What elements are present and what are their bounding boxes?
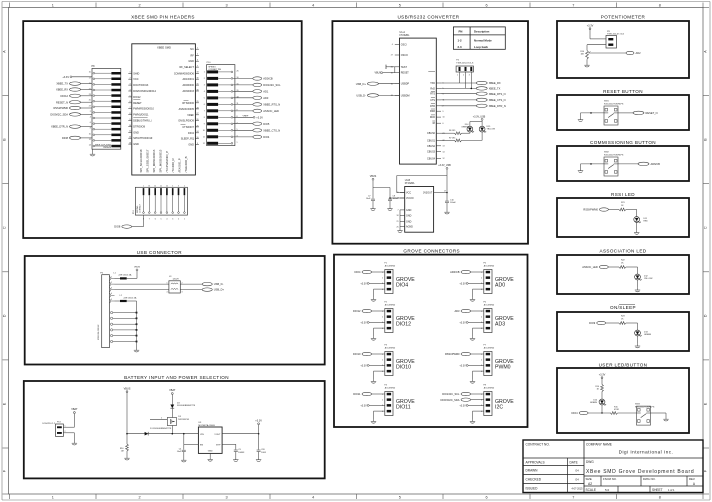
svg-text:R6 1K5: R6 1K5 bbox=[449, 130, 455, 132]
svg-text:BYP: BYP bbox=[216, 444, 221, 446]
svg-text:C: C bbox=[704, 226, 708, 229]
svg-text:2: 2 bbox=[138, 496, 140, 500]
svg-text:7: 7 bbox=[130, 107, 131, 109]
svg-text:Normal Mode: Normal Mode bbox=[474, 38, 492, 42]
svg-text:RSSI/PWM0: RSSI/PWM0 bbox=[583, 208, 598, 212]
svg-text:MIC5B7/A-33GB: MIC5B7/A-33GB bbox=[198, 424, 215, 427]
svg-text:7: 7 bbox=[204, 111, 205, 113]
svg-text:AD0: AD0 bbox=[495, 283, 505, 289]
svg-text:14: 14 bbox=[443, 151, 445, 153]
svg-text:VCCIO: VCCIO bbox=[406, 197, 414, 200]
svg-text:XBEE_RTS_N: XBEE_RTS_N bbox=[489, 92, 506, 96]
svg-text:DIO12: DIO12 bbox=[396, 322, 411, 328]
svg-text:SW2: SW2 bbox=[604, 152, 610, 154]
svg-text:TXD: TXD bbox=[430, 82, 435, 85]
svg-text:+3.3V: +3.3V bbox=[256, 117, 263, 120]
svg-text:2: 2 bbox=[111, 282, 112, 284]
svg-text:1: 1 bbox=[457, 74, 458, 76]
svg-text:3: 3 bbox=[172, 218, 173, 220]
svg-text:11: 11 bbox=[129, 131, 131, 133]
svg-text:27: 27 bbox=[391, 55, 393, 57]
svg-text:RF_SELECT: RF_SELECT bbox=[179, 66, 194, 69]
svg-text:RSSI LED: RSSI LED bbox=[611, 192, 635, 197]
svg-text:10: 10 bbox=[443, 117, 445, 119]
svg-text:120uH: 120uH bbox=[173, 279, 179, 281]
svg-text:3: 3 bbox=[204, 85, 205, 87]
svg-text:GND: GND bbox=[188, 144, 194, 147]
svg-text:VCC: VCC bbox=[406, 192, 411, 195]
svg-text:CONTRACT NO.: CONTRACT NO. bbox=[526, 443, 550, 447]
svg-text:KSC421J/70SHLFS: KSC421J/70SHLFS bbox=[604, 154, 624, 156]
svg-text:3: 3 bbox=[469, 74, 470, 76]
svg-text:3: 3 bbox=[225, 3, 227, 7]
svg-text:470R: 470R bbox=[614, 409, 619, 411]
svg-text:RED: RED bbox=[644, 221, 649, 223]
svg-text:I2C: I2C bbox=[495, 405, 503, 411]
svg-text:7: 7 bbox=[237, 122, 238, 124]
svg-text:ASSOC_LED: ASSOC_LED bbox=[263, 109, 279, 113]
svg-text:AD1: AD1 bbox=[263, 89, 269, 93]
svg-text:DIO4: DIO4 bbox=[354, 270, 361, 274]
svg-text:DIO5: DIO5 bbox=[263, 122, 270, 126]
svg-text:1: 1 bbox=[52, 496, 54, 500]
svg-text:XBEE_DTR_N: XBEE_DTR_N bbox=[51, 125, 68, 129]
svg-text:BATTERY INPUT AND POWER SELECT: BATTERY INPUT AND POWER SELECTION bbox=[124, 375, 229, 380]
svg-text:XBEE_RX: XBEE_RX bbox=[489, 81, 501, 85]
svg-text:12: 12 bbox=[203, 143, 205, 145]
svg-text:COMMISSIONING BUTTON: COMMISSIONING BUTTON bbox=[590, 140, 656, 145]
svg-text:C: C bbox=[3, 226, 7, 229]
svg-text:RESET: RESET bbox=[133, 102, 142, 105]
svg-text:2: 2 bbox=[138, 3, 140, 7]
svg-text:DWG: DWG bbox=[586, 460, 594, 464]
svg-text:COMPANY NAME: COMPANY NAME bbox=[586, 443, 612, 447]
svg-text:19: 19 bbox=[89, 83, 91, 85]
svg-text:4: 4 bbox=[392, 44, 393, 46]
svg-text:ACC3SH40: ACC3SH40 bbox=[385, 386, 396, 389]
svg-text:RSSI/PWM0: RSSI/PWM0 bbox=[53, 106, 68, 110]
svg-text:TSW-103-07-G-S: TSW-103-07-G-S bbox=[456, 63, 474, 65]
svg-text:MALE 4-DP-25E02: MALE 4-DP-25E02 bbox=[95, 144, 111, 147]
svg-text:ASSOC/DIO5: ASSOC/DIO5 bbox=[179, 108, 195, 111]
svg-text:4: 4 bbox=[167, 291, 168, 293]
svg-text:SIZE: SIZE bbox=[586, 477, 592, 481]
svg-text:CTS: CTS bbox=[430, 99, 435, 102]
svg-text:28: 28 bbox=[197, 107, 199, 109]
svg-text:RESET_N: RESET_N bbox=[56, 100, 68, 104]
svg-text:5: 5 bbox=[172, 185, 173, 187]
svg-text:RF: RF bbox=[191, 54, 195, 57]
svg-text:SPRING: SPRING bbox=[137, 205, 139, 213]
svg-text:12: 12 bbox=[154, 185, 156, 187]
svg-text:AD3: AD3 bbox=[495, 322, 505, 328]
svg-text:SPI_MISO/DIO15: SPI_MISO/DIO15 bbox=[158, 149, 162, 172]
svg-text:XBEE_TX: XBEE_TX bbox=[489, 87, 501, 91]
svg-text:Description: Description bbox=[474, 29, 490, 33]
svg-text:10UF: 10UF bbox=[261, 452, 267, 454]
svg-text:/TX/PWR/DIO_P: /TX/PWR/DIO_P bbox=[165, 151, 169, 173]
svg-text:3: 3 bbox=[111, 288, 112, 290]
svg-text:2: 2 bbox=[481, 317, 482, 319]
svg-text:6: 6 bbox=[204, 104, 205, 106]
svg-text:VBUS: VBUS bbox=[374, 72, 381, 75]
svg-text:DIO11: DIO11 bbox=[396, 405, 411, 411]
svg-text:4: 4 bbox=[130, 89, 131, 91]
svg-text:26: 26 bbox=[237, 70, 239, 72]
svg-text:1: 1 bbox=[237, 142, 238, 144]
svg-text:CBUS4: CBUS4 bbox=[427, 158, 436, 161]
svg-text:2: 2 bbox=[481, 360, 482, 362]
svg-text:DWG NO.: DWG NO. bbox=[643, 477, 656, 481]
svg-text:GND: GND bbox=[406, 209, 412, 212]
svg-text:PWM1/DIO11: PWM1/DIO11 bbox=[133, 114, 149, 117]
svg-text:12: 12 bbox=[129, 137, 131, 139]
svg-text:ACC3SH40: ACC3SH40 bbox=[484, 346, 495, 349]
svg-text:9: 9 bbox=[197, 143, 198, 145]
svg-text:ACC3SH40: ACC3SH40 bbox=[484, 264, 495, 267]
svg-text:3: 3 bbox=[130, 84, 131, 86]
svg-text:USB_D+: USB_D+ bbox=[356, 82, 367, 86]
svg-text:9: 9 bbox=[443, 111, 444, 113]
svg-text:4: 4 bbox=[312, 496, 314, 500]
svg-text:8: 8 bbox=[204, 117, 205, 119]
svg-text:GREEN: GREEN bbox=[590, 402, 598, 404]
svg-text:+3.3V: +3.3V bbox=[459, 404, 466, 407]
svg-text:FT232RL: FT232RL bbox=[400, 34, 411, 37]
svg-text:SHID: SHID bbox=[133, 72, 139, 75]
svg-text:GND: GND bbox=[406, 214, 412, 217]
svg-text:Digi International Inc.: Digi International Inc. bbox=[619, 450, 674, 455]
svg-text:VBAT: VBAT bbox=[71, 408, 78, 411]
svg-text:11: 11 bbox=[160, 185, 162, 187]
svg-text:RESET_N: RESET_N bbox=[646, 111, 658, 115]
svg-text:CBUS1: CBUS1 bbox=[427, 139, 436, 142]
svg-text:AD0/DIO0: AD0/DIO0 bbox=[182, 84, 194, 87]
svg-text:AD3: AD3 bbox=[454, 309, 460, 313]
svg-text:SHEET: SHEET bbox=[652, 488, 663, 492]
svg-text:10: 10 bbox=[89, 133, 91, 135]
svg-text:2-3: 2-3 bbox=[458, 45, 462, 49]
svg-text:VBAT: VBAT bbox=[169, 389, 176, 392]
svg-text:B: B bbox=[2, 138, 6, 141]
svg-text:12: 12 bbox=[443, 158, 445, 160]
svg-text:18: 18 bbox=[397, 215, 399, 217]
svg-text:1-2: 1-2 bbox=[458, 38, 462, 42]
svg-text:4: 4 bbox=[90, 117, 91, 119]
svg-text:R7 1K5: R7 1K5 bbox=[449, 137, 455, 139]
svg-text:VBUS: VBUS bbox=[124, 387, 131, 390]
svg-text:CBUS3: CBUS3 bbox=[427, 151, 436, 154]
svg-text:RESET BUTTON: RESET BUTTON bbox=[603, 89, 643, 94]
svg-text:7: 7 bbox=[149, 218, 150, 220]
svg-text:2: 2 bbox=[184, 185, 185, 187]
svg-text:USB_D-: USB_D- bbox=[356, 94, 366, 98]
svg-text:SLEEP_RQ: SLEEP_RQ bbox=[181, 138, 194, 141]
svg-text:5: 5 bbox=[204, 98, 205, 100]
svg-text:SPI_SCLK/DIO18: SPI_SCLK/DIO18 bbox=[139, 149, 143, 172]
svg-text:DIO9: DIO9 bbox=[589, 321, 596, 325]
svg-text:XBee SMD Grove Development Boa: XBee SMD Grove Development Board bbox=[586, 469, 694, 475]
svg-text:4: 4 bbox=[204, 91, 205, 93]
svg-text:6: 6 bbox=[155, 218, 156, 220]
svg-text:7: 7 bbox=[197, 66, 198, 68]
svg-text:100nF: 100nF bbox=[450, 202, 456, 204]
svg-text:DIO10: DIO10 bbox=[396, 365, 411, 371]
svg-text:13: 13 bbox=[443, 145, 445, 147]
svg-text:DIO11: DIO11 bbox=[353, 392, 361, 396]
svg-text:1: 1 bbox=[204, 72, 205, 74]
svg-text:NC: NC bbox=[190, 48, 194, 51]
svg-text:6: 6 bbox=[485, 3, 487, 7]
svg-text:ACC3SH40: ACC3SH40 bbox=[385, 346, 396, 349]
svg-text:2: 2 bbox=[65, 431, 66, 433]
svg-text:4: 4 bbox=[166, 218, 167, 220]
svg-text:REV.: REV. bbox=[689, 477, 695, 481]
svg-text:AD1/DIO1: AD1/DIO1 bbox=[182, 78, 194, 81]
svg-text:29: 29 bbox=[197, 101, 199, 103]
svg-text:+3.3V: +3.3V bbox=[255, 419, 262, 422]
svg-text:1: 1 bbox=[143, 185, 144, 187]
svg-text:+3.3V_USB: +3.3V_USB bbox=[438, 164, 451, 167]
svg-text:3V3OUT: 3V3OUT bbox=[423, 192, 433, 195]
svg-text:USB_D-: USB_D- bbox=[214, 282, 224, 286]
svg-text:USB_D+: USB_D+ bbox=[214, 288, 225, 292]
svg-text:GND: GND bbox=[406, 220, 412, 223]
svg-text:AD3/DIO3: AD3/DIO3 bbox=[182, 90, 194, 93]
svg-text:RxD: RxD bbox=[430, 87, 435, 90]
svg-text:DIO12: DIO12 bbox=[133, 96, 141, 99]
svg-text:3: 3 bbox=[182, 291, 183, 293]
svg-text:DCB-PIN #1.2: DCB-PIN #1.2 bbox=[42, 423, 56, 425]
svg-text:TEST: TEST bbox=[401, 66, 408, 69]
svg-text:24: 24 bbox=[197, 131, 199, 133]
svg-text:OSCI: OSCI bbox=[401, 43, 407, 46]
svg-text:DIO10: DIO10 bbox=[353, 352, 361, 356]
svg-text:3: 3 bbox=[178, 185, 179, 187]
svg-text:DSR: DSR bbox=[430, 110, 435, 113]
svg-text:2: 2 bbox=[463, 74, 464, 76]
svg-text:SCALE: SCALE bbox=[586, 488, 596, 492]
svg-text:DIO4: DIO4 bbox=[188, 132, 194, 135]
svg-text:18: 18 bbox=[237, 96, 239, 98]
svg-text:DIO12: DIO12 bbox=[353, 309, 361, 313]
svg-text:30: 30 bbox=[197, 78, 199, 80]
svg-text:USBDM: USBDM bbox=[401, 94, 410, 97]
svg-text:ACC3SH40: ACC3SH40 bbox=[484, 386, 495, 389]
svg-text:2: 2 bbox=[382, 278, 383, 280]
svg-text:CBUS0: CBUS0 bbox=[427, 132, 436, 135]
svg-text:USBDP: USBDP bbox=[401, 83, 410, 86]
svg-text:SW3: SW3 bbox=[635, 404, 641, 406]
svg-text:25: 25 bbox=[197, 125, 199, 127]
svg-text:KSC421J/70SHLFS: KSC421J/70SHLFS bbox=[635, 406, 655, 408]
svg-text:ASSOCIATION LED: ASSOCIATION LED bbox=[600, 249, 647, 254]
svg-text:17: 17 bbox=[89, 77, 91, 79]
svg-text:1M: 1M bbox=[121, 451, 124, 453]
svg-text:USB CONNECTOR: USB CONNECTOR bbox=[137, 250, 182, 255]
svg-text:6: 6 bbox=[90, 122, 91, 124]
svg-text:25: 25 bbox=[89, 100, 91, 102]
svg-text:RSSI/PWM0: RSSI/PWM0 bbox=[445, 352, 460, 356]
svg-text:6: 6 bbox=[130, 101, 131, 103]
svg-text:GREEN: GREEN bbox=[644, 334, 652, 336]
svg-text:ASSOC_LED: ASSOC_LED bbox=[582, 265, 598, 269]
svg-text:AD3: AD3 bbox=[263, 96, 269, 100]
svg-text:DIO8: DIO8 bbox=[62, 136, 69, 140]
svg-text:6: 6 bbox=[485, 496, 487, 500]
svg-text:AGND: AGND bbox=[406, 226, 413, 229]
svg-text:3: 3 bbox=[225, 496, 227, 500]
svg-text:1 of 1: 1 of 1 bbox=[668, 488, 675, 492]
svg-text:4: 4 bbox=[111, 293, 112, 295]
svg-text:DTR/DIO8: DTR/DIO8 bbox=[133, 125, 145, 128]
svg-text:B: B bbox=[703, 138, 707, 141]
svg-text:+3.3V: +3.3V bbox=[360, 282, 367, 285]
svg-text:22R 0hm/2.2A: 22R 0hm/2.2A bbox=[119, 274, 132, 277]
svg-text:9: 9 bbox=[130, 119, 131, 121]
svg-text:10: 10 bbox=[129, 125, 131, 127]
svg-text:GND: GND bbox=[208, 451, 213, 453]
svg-text:2: 2 bbox=[197, 54, 198, 56]
svg-text:3: 3 bbox=[197, 60, 198, 62]
svg-text:ON/SLEEP: ON/SLEEP bbox=[610, 305, 636, 310]
svg-text:26: 26 bbox=[197, 119, 199, 121]
svg-text:14: 14 bbox=[89, 145, 91, 147]
svg-text:13: 13 bbox=[129, 143, 131, 145]
svg-text:POTENTIOMETER: POTENTIOMETER bbox=[601, 15, 646, 20]
svg-text:1: 1 bbox=[65, 426, 66, 428]
svg-text:8: 8 bbox=[90, 128, 91, 130]
svg-text:+3.3V: +3.3V bbox=[459, 321, 466, 324]
svg-text:25: 25 bbox=[397, 226, 399, 228]
svg-text:PWM/RSSI/DIO10: PWM/RSSI/DIO10 bbox=[133, 108, 154, 111]
svg-text:AD2: AD2 bbox=[636, 51, 642, 55]
svg-text:2: 2 bbox=[382, 400, 383, 402]
svg-text:XBEE SMD: XBEE SMD bbox=[157, 45, 171, 49]
svg-text:2: 2 bbox=[130, 78, 131, 80]
svg-text:10: 10 bbox=[166, 185, 168, 187]
svg-text:1: 1 bbox=[52, 3, 54, 7]
svg-text:ISSUED: ISSUED bbox=[526, 487, 539, 491]
svg-text:VBUS: VBUS bbox=[134, 267, 140, 269]
svg-text:GND: GND bbox=[188, 60, 194, 63]
svg-text:RTS/DIO6: RTS/DIO6 bbox=[182, 102, 194, 105]
svg-text:5: 5 bbox=[130, 95, 131, 97]
svg-text:+3.3V: +3.3V bbox=[599, 373, 606, 376]
svg-text:22R 0hm/2.2A: 22R 0hm/2.2A bbox=[124, 297, 137, 300]
svg-text:33: 33 bbox=[197, 72, 199, 74]
svg-text:2: 2 bbox=[204, 78, 205, 80]
svg-text:XBEE SMD PIN HEADERS: XBEE SMD PIN HEADERS bbox=[131, 15, 195, 20]
svg-text:A: A bbox=[2, 50, 6, 53]
svg-text:4-07-2015: 4-07-2015 bbox=[572, 488, 584, 491]
svg-text:DTR: DTR bbox=[430, 105, 435, 108]
svg-text:EN: EN bbox=[200, 444, 203, 446]
svg-text:CM26x26: CM26x26 bbox=[103, 147, 111, 149]
svg-text:XBEE_RX: XBEE_RX bbox=[56, 88, 68, 92]
svg-text:VCC: VCC bbox=[133, 78, 138, 81]
svg-text:ACC3SH40: ACC3SH40 bbox=[484, 303, 495, 306]
svg-text:30: 30 bbox=[197, 89, 199, 91]
svg-text:13: 13 bbox=[148, 185, 150, 187]
svg-text:APPROVALS: APPROVALS bbox=[526, 461, 545, 465]
svg-text:Loop back: Loop back bbox=[474, 45, 488, 49]
svg-text:VREF: VREF bbox=[187, 114, 194, 117]
svg-text:DIO4: DIO4 bbox=[263, 135, 270, 139]
svg-text:DRAWN: DRAWN bbox=[526, 469, 539, 473]
svg-text:VIN: VIN bbox=[200, 434, 204, 436]
svg-text:XBEE_DTR_N: XBEE_DTR_N bbox=[489, 104, 506, 108]
svg-text:1: 1 bbox=[130, 72, 131, 74]
svg-text:/TX/DIO_R: /TX/DIO_R bbox=[171, 158, 175, 172]
svg-text:DIO4: DIO4 bbox=[396, 283, 408, 289]
svg-text:1: 1 bbox=[111, 276, 112, 278]
svg-text:DIO4: DIO4 bbox=[572, 411, 579, 415]
svg-text:PN: PN bbox=[459, 29, 463, 33]
svg-text:RESET: RESET bbox=[401, 72, 410, 75]
svg-text:DOUT/DIO13: DOUT/DIO13 bbox=[133, 84, 149, 87]
svg-text:21: 21 bbox=[397, 221, 399, 223]
svg-text:YELLOW: YELLOW bbox=[644, 278, 652, 280]
svg-text:CHECKED: CHECKED bbox=[526, 478, 542, 482]
svg-text:65R3104-0001LF: 65R3104-0001LF bbox=[98, 324, 100, 340]
svg-text:SW1: SW1 bbox=[604, 101, 610, 103]
svg-text:7: 7 bbox=[572, 496, 574, 500]
svg-text:2: 2 bbox=[90, 111, 91, 113]
svg-text:DCD: DCD bbox=[430, 116, 435, 119]
svg-text:D1 SS14LE/BMN4277S: D1 SS14LE/BMN4277S bbox=[150, 428, 172, 430]
svg-text:+3.3V: +3.3V bbox=[360, 364, 367, 367]
svg-text:D: D bbox=[704, 314, 708, 317]
svg-text:OSCO: OSCO bbox=[401, 54, 408, 57]
svg-text:NX2301P05: NX2301P05 bbox=[178, 419, 190, 421]
svg-text:SS14LE/BMN4277S: SS14LE/BMN4277S bbox=[177, 405, 196, 407]
svg-text:YELLOW: YELLOW bbox=[487, 129, 495, 131]
svg-text:2: 2 bbox=[382, 317, 383, 319]
svg-text:SPI_SSEL/DIO17: SPI_SSEL/DIO17 bbox=[146, 149, 150, 172]
svg-text:GROVE CONNECTORS: GROVE CONNECTORS bbox=[403, 248, 460, 253]
svg-text:DIO1/I2C_SCL: DIO1/I2C_SCL bbox=[263, 83, 281, 87]
svg-text:10uF: 10uF bbox=[177, 451, 182, 453]
svg-text:DATE: DATE bbox=[570, 461, 578, 465]
svg-text:+3.3V: +3.3V bbox=[459, 282, 466, 285]
svg-text:G4: G4 bbox=[575, 469, 579, 473]
svg-text:DIO1/I2C_SCL: DIO1/I2C_SCL bbox=[442, 392, 460, 396]
svg-text:20: 20 bbox=[237, 90, 239, 92]
svg-text:8: 8 bbox=[659, 3, 661, 7]
svg-text:DEBUG/THRU_/: DEBUG/THRU_/ bbox=[133, 120, 152, 123]
svg-text:VOUT: VOUT bbox=[214, 434, 221, 436]
svg-text:15: 15 bbox=[89, 72, 91, 74]
svg-text:/THE/DIO_B: /THE/DIO_B bbox=[184, 156, 188, 172]
svg-text:31: 31 bbox=[197, 84, 199, 86]
svg-text:VBUS: VBUS bbox=[370, 175, 377, 178]
svg-text:5: 5 bbox=[111, 299, 112, 301]
svg-text:DIO8: DIO8 bbox=[114, 225, 121, 229]
svg-text:GND: GND bbox=[133, 143, 139, 146]
svg-text:CTS/DIO7: CTS/DIO7 bbox=[182, 126, 194, 129]
svg-text:1: 1 bbox=[167, 282, 168, 284]
svg-text:6: 6 bbox=[443, 123, 444, 125]
svg-text:AD6/CB: AD6/CB bbox=[651, 162, 661, 166]
svg-text:12: 12 bbox=[89, 139, 91, 141]
svg-text:DIO12: DIO12 bbox=[61, 94, 69, 98]
svg-text:2: 2 bbox=[481, 278, 482, 280]
svg-text:7: 7 bbox=[398, 210, 399, 212]
svg-text:ACC3SH40: ACC3SH40 bbox=[385, 264, 396, 267]
svg-text:8: 8 bbox=[659, 496, 661, 500]
svg-text:5: 5 bbox=[399, 3, 401, 7]
